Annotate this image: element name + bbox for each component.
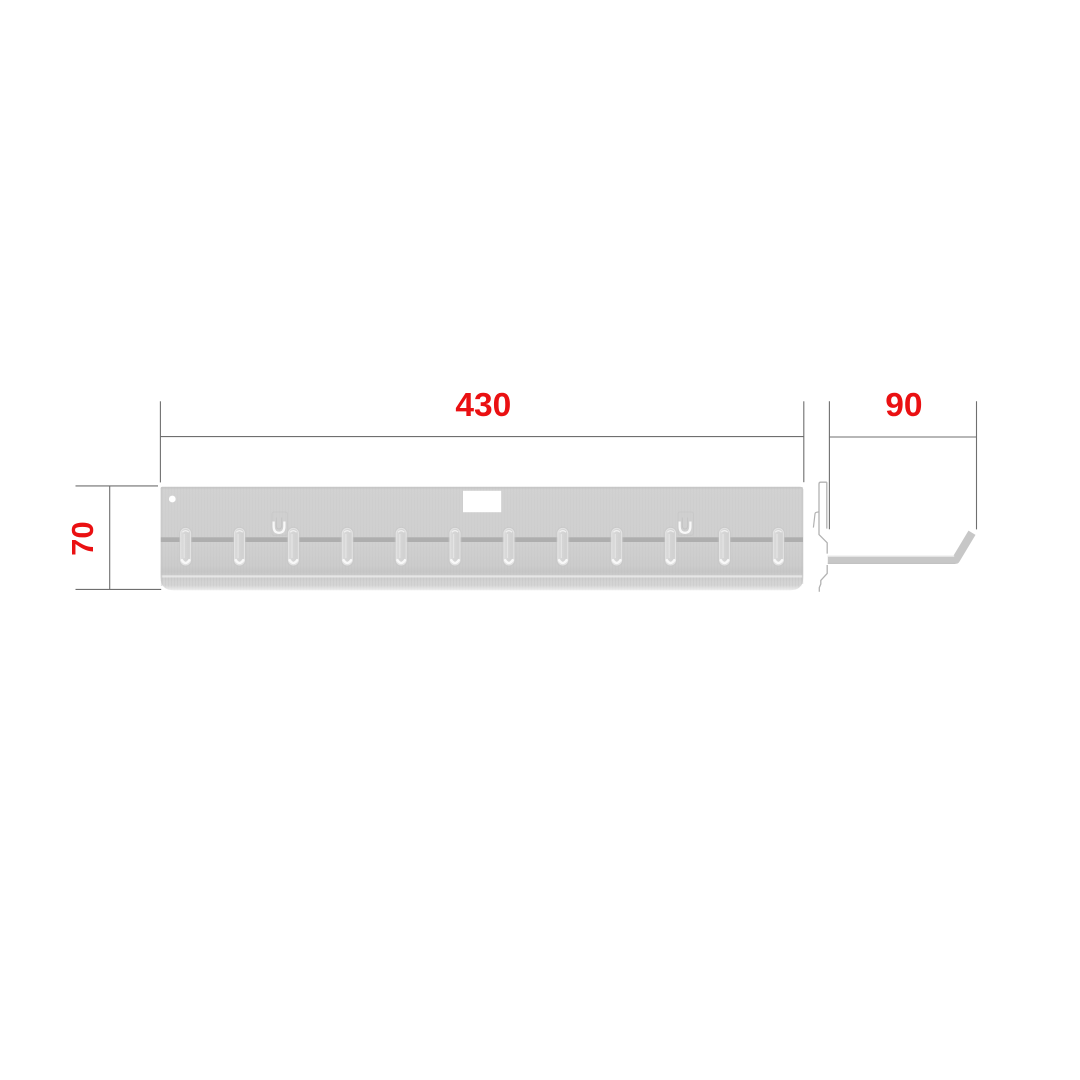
svg-text:430: 430 bbox=[455, 387, 511, 424]
svg-text:70: 70 bbox=[65, 521, 100, 555]
svg-text:90: 90 bbox=[885, 387, 922, 424]
